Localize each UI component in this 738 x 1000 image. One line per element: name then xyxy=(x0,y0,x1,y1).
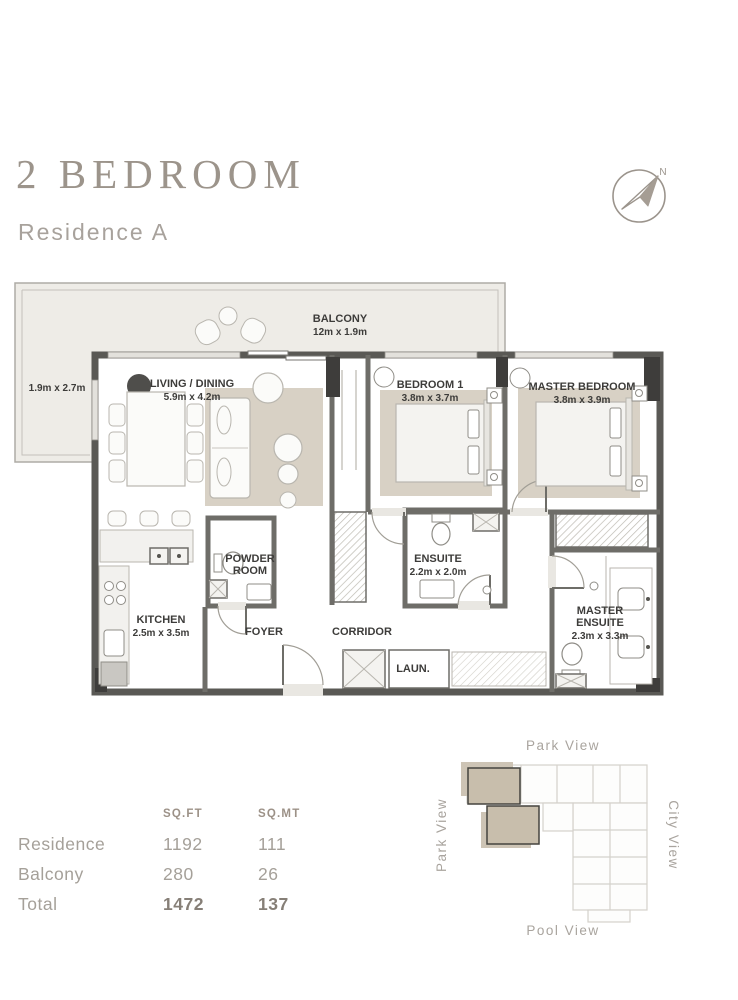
floorplan-page: 2 BEDROOM Residence A N xyxy=(0,0,738,1000)
row-sqmt: 111 xyxy=(258,834,348,855)
balcony-label: BALCONY xyxy=(313,313,368,325)
ensuite-dims: 2.2m x 2.0m xyxy=(410,567,467,578)
page-subtitle: Residence A xyxy=(18,219,169,246)
row-sqft: 280 xyxy=(163,864,258,885)
living-label: LIVING / DINING xyxy=(150,378,234,390)
col-header-sqmt: SQ.MT xyxy=(258,808,348,820)
corridor-mat xyxy=(452,652,546,686)
master-ensuite-label-2: ENSUITE xyxy=(576,617,624,629)
balcony-side-dims: 1.9m x 2.7m xyxy=(29,383,86,394)
living-dims: 5.9m x 4.2m xyxy=(164,392,221,403)
master-ensuite-dims: 2.3m x 3.3m xyxy=(572,631,629,642)
row-sqft-total: 1472 xyxy=(163,894,258,915)
row-label-total: Total xyxy=(18,894,163,915)
site-map: Park View Park View City View Pool View xyxy=(436,735,738,950)
hall-wardrobe xyxy=(334,512,366,602)
compass-north-label: N xyxy=(659,167,666,178)
powder-label-2: ROOM xyxy=(233,565,267,577)
row-sqmt: 26 xyxy=(258,864,348,885)
row-label: Residence xyxy=(18,834,163,855)
kitchen-dims: 2.5m x 3.5m xyxy=(133,628,190,639)
foyer-label: FOYER xyxy=(245,626,283,638)
bedroom1-dims: 3.8m x 3.7m xyxy=(402,393,459,404)
compass-icon: N xyxy=(606,158,676,228)
site-map-label-right: City View xyxy=(666,800,681,870)
col-header-sqft: SQ.FT xyxy=(163,808,258,820)
master-wardrobe xyxy=(556,514,648,547)
kitchen-fixtures xyxy=(99,511,193,686)
area-table: SQ.FT SQ.MT Residence 1192 111 Balcony 2… xyxy=(18,799,348,919)
balcony-dims: 12m x 1.9m xyxy=(313,327,367,338)
site-map-label-top: Park View xyxy=(526,738,600,753)
laundry-label: LAUN. xyxy=(396,663,430,675)
site-map-label-left: Park View xyxy=(436,798,449,872)
powder-label-1: POWDER xyxy=(225,553,275,565)
kitchen-label: KITCHEN xyxy=(137,614,186,626)
master-label: MASTER BEDROOM xyxy=(529,381,636,393)
ensuite-label: ENSUITE xyxy=(414,553,462,565)
row-sqft: 1192 xyxy=(163,834,258,855)
page-title: 2 BEDROOM xyxy=(16,150,306,198)
row-label: Balcony xyxy=(18,864,163,885)
floor-plan: BALCONY 12m x 1.9m 1.9m x 2.7m LIVING / … xyxy=(0,275,738,715)
master-ensuite-label-1: MASTER xyxy=(577,605,624,617)
row-sqmt-total: 137 xyxy=(258,894,348,915)
corridor-label: CORRIDOR xyxy=(332,626,392,638)
bedroom1-label: BEDROOM 1 xyxy=(397,379,464,391)
master-dims: 3.8m x 3.9m xyxy=(554,395,611,406)
site-map-label-bottom: Pool View xyxy=(526,923,599,938)
